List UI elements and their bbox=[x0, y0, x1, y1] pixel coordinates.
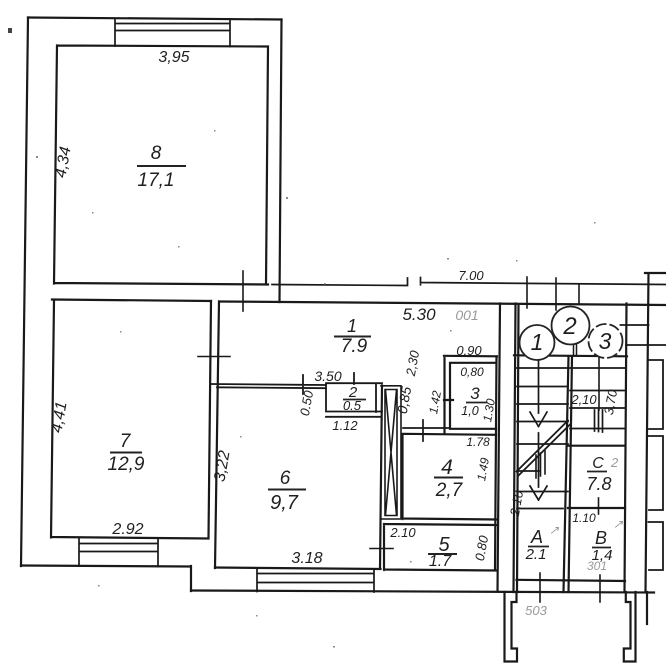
svg-text:5.30: 5.30 bbox=[402, 305, 436, 324]
svg-text:1: 1 bbox=[531, 329, 544, 355]
svg-text:2.1: 2.1 bbox=[525, 546, 547, 563]
svg-text:9,7: 9,7 bbox=[270, 492, 299, 514]
svg-text:3,70: 3,70 bbox=[601, 388, 620, 416]
svg-text:2,30: 2,30 bbox=[403, 349, 422, 378]
svg-text:3: 3 bbox=[599, 328, 612, 354]
svg-text:3,22: 3,22 bbox=[211, 449, 233, 483]
svg-text:0.90: 0.90 bbox=[456, 343, 482, 358]
svg-text:A: A bbox=[530, 527, 543, 547]
svg-text:2.10: 2.10 bbox=[389, 525, 416, 540]
svg-text:1: 1 bbox=[347, 316, 357, 336]
svg-text:4: 4 bbox=[441, 456, 453, 479]
svg-text:3.18: 3.18 bbox=[291, 550, 322, 567]
svg-text:7.9: 7.9 bbox=[341, 336, 368, 357]
svg-text:2,10: 2,10 bbox=[570, 392, 597, 407]
svg-text:2,10: 2,10 bbox=[507, 489, 526, 518]
svg-text:0.80: 0.80 bbox=[472, 534, 491, 562]
svg-text:001: 001 bbox=[455, 307, 478, 323]
svg-text:1,0: 1,0 bbox=[461, 404, 478, 418]
svg-text:12,9: 12,9 bbox=[108, 454, 145, 475]
svg-text:3,95: 3,95 bbox=[158, 49, 189, 66]
svg-text:2: 2 bbox=[610, 455, 619, 470]
svg-text:3: 3 bbox=[470, 384, 480, 403]
svg-text:1.49: 1.49 bbox=[474, 456, 492, 482]
svg-text:C: C bbox=[592, 455, 604, 472]
svg-text:503: 503 bbox=[525, 603, 547, 618]
svg-text:7.00: 7.00 bbox=[458, 268, 484, 283]
svg-text:1.7: 1.7 bbox=[429, 553, 452, 570]
svg-text:0.50: 0.50 bbox=[297, 389, 316, 417]
svg-text:3.50: 3.50 bbox=[314, 368, 341, 384]
svg-text:0.5: 0.5 bbox=[343, 398, 362, 413]
svg-text:0,85: 0,85 bbox=[394, 385, 415, 415]
svg-text:17,1: 17,1 bbox=[138, 170, 175, 191]
svg-text:7: 7 bbox=[120, 431, 132, 452]
svg-text:B: B bbox=[595, 528, 607, 548]
svg-text:2.92: 2.92 bbox=[111, 521, 143, 538]
svg-text:6: 6 bbox=[280, 468, 291, 489]
svg-text:↗: ↗ bbox=[613, 517, 624, 531]
svg-text:↗: ↗ bbox=[549, 523, 560, 537]
svg-text:1.10: 1.10 bbox=[572, 511, 596, 525]
svg-text:7.8: 7.8 bbox=[586, 474, 611, 494]
svg-text:301: 301 bbox=[587, 559, 607, 573]
svg-text:8: 8 bbox=[151, 143, 162, 164]
svg-text:0,80: 0,80 bbox=[460, 365, 484, 379]
svg-text:1.12: 1.12 bbox=[332, 418, 358, 433]
svg-text:2: 2 bbox=[562, 313, 576, 340]
svg-text:1.42: 1.42 bbox=[426, 389, 444, 415]
svg-text:1.78: 1.78 bbox=[466, 435, 490, 449]
svg-text:2,7: 2,7 bbox=[435, 480, 464, 501]
